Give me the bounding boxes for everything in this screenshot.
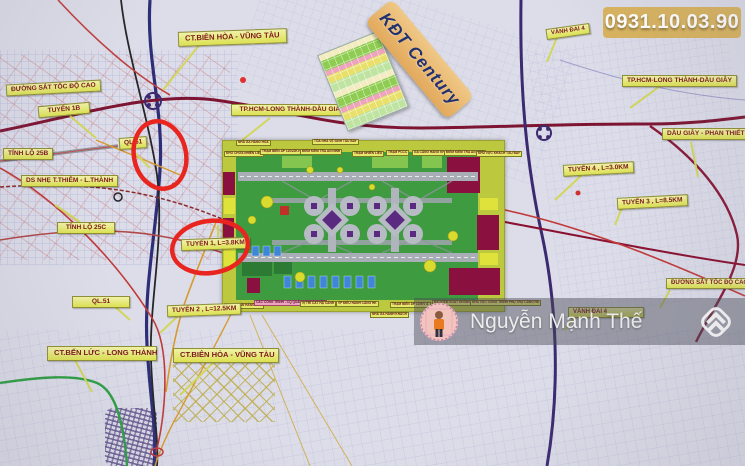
watermark-name: Nguyễn Mạnh Thế [470, 310, 642, 334]
red-dot-3 [576, 191, 581, 196]
maroon-block-left [223, 218, 234, 238]
road-label-route-1: TUYẾN 1, L=3.8KM [181, 237, 250, 251]
road-label-25b: TỈNH LỘ 25B [3, 148, 53, 160]
maroon-block-bl [247, 278, 260, 293]
brand-logo-icon [695, 301, 737, 343]
road-label-25c: TỈNH LỘ 25C [57, 222, 115, 234]
road-label-ct-benluc-longthanh: CT.BẾN LỨC - LONG THÀNH [47, 346, 157, 361]
plan-label: KHO CHỨA NHIÊN LIỆU [224, 151, 264, 157]
plan-label: NHÀ GA HÀNH KHÁCH [370, 312, 409, 318]
red-facility [280, 206, 289, 215]
road-label-ql51-upper: QL.51 [119, 136, 148, 150]
red-dot-2 [172, 183, 177, 188]
ring-road-4 [521, 0, 555, 466]
plan-caption-aircraft-building: TÒA NHÀ VỆ SINH TÀU BAY [312, 139, 359, 145]
junction-small [114, 193, 122, 201]
plan-label: TRẠM NHIÊN LIỆU [352, 151, 384, 157]
plan-label: KHU VỰC KHÁCH TÀU BAY [476, 151, 522, 157]
map-photo: NHÀ GA HÀNG HÓA TÒA NHÀ VỆ SINH TÀU BAY … [0, 0, 745, 466]
avatar [420, 303, 458, 341]
plan-label: TRẠM BIẾN ÁP 110/22KV [260, 149, 302, 155]
highspeed-rail-right [505, 222, 745, 265]
road-label-ql51-lower: QL.51 [72, 296, 130, 308]
route-orange-a [250, 315, 310, 466]
watermark-bar: Nguyễn Mạnh Thế [414, 298, 745, 345]
road-label-highspeed-rail-right: ĐƯỜNG SẮT TỐC ĐỘ CAO [666, 278, 745, 289]
plan-caption-cargo-terminal: NHÀ GA HÀNG HÓA [236, 140, 271, 146]
road-red-left [0, 168, 165, 452]
road-label-ct-bienhoa-vungtau-bottom: CT.BIÊN HÒA - VŨNG TÀU [173, 348, 279, 363]
airport-masterplan [222, 140, 505, 312]
road-label-hcm-longthanh-daugiay-left: TP.HCM-LONG THÀNH-DẦU GIÂY [231, 104, 353, 116]
plan-label: VP ĐIỀU HÀNH CẢNG HK [336, 301, 379, 307]
road-label-lightrail: DS NHẸ T.THIÊM - L.THÀNH [21, 175, 118, 187]
route-orange-b [262, 315, 352, 466]
plan-label: TRẠM PCCC [386, 150, 409, 156]
expressway-benluc-longthanh-green [0, 377, 127, 466]
plan-label: ĐIỂM KIỂM TRA AN NINH [300, 149, 342, 155]
maroon-block-br [449, 268, 500, 295]
phone-number: 0931.10.03.90 [605, 11, 739, 34]
interchange-ringroad4 [537, 126, 551, 140]
plan-label: VỊ TRÍ CẤT HẠ CÁNH [300, 301, 336, 307]
road-label-daugiay-phanthiet: DẦU GIÂY - PHAN THIẾT [662, 128, 745, 140]
maroon-block-tl [223, 172, 235, 195]
agent-photo-icon [420, 303, 458, 341]
red-dot-1 [240, 77, 246, 83]
road-label-hcm-longthanh-daugiay-right: TP.HCM-LONG THÀNH-DẦU GIÂY [622, 75, 737, 87]
maroon-block-right [477, 215, 499, 250]
phone-number-plate: 0931.10.03.90 [603, 7, 741, 38]
